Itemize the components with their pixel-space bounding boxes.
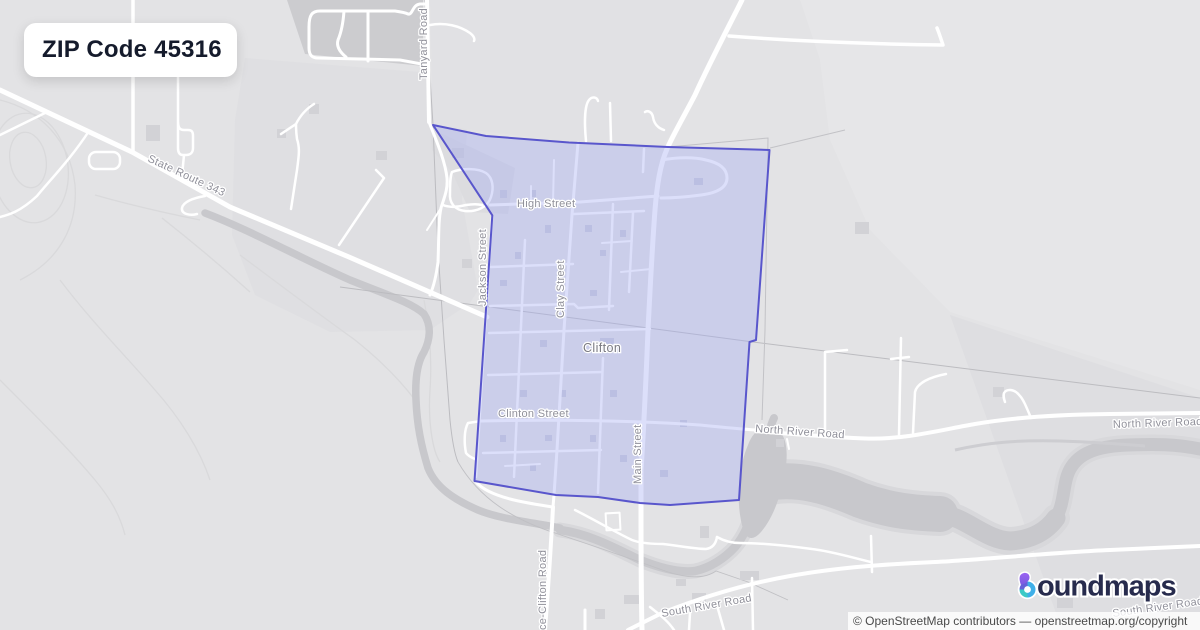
svg-text:oundmaps: oundmaps [1037, 571, 1176, 603]
svg-text:High Street: High Street [517, 198, 575, 210]
svg-text:Jackson Street: Jackson Street [477, 229, 489, 306]
svg-text:Clinton Street: Clinton Street [498, 408, 569, 420]
svg-text:Clifton: Clifton [583, 341, 621, 355]
svg-text:Clay Street: Clay Street [555, 260, 567, 318]
svg-text:Main Street: Main Street [632, 424, 644, 484]
svg-text:Tanyard Road: Tanyard Road [418, 8, 430, 80]
svg-text:ce-Clifton Road: ce-Clifton Road [537, 550, 549, 630]
